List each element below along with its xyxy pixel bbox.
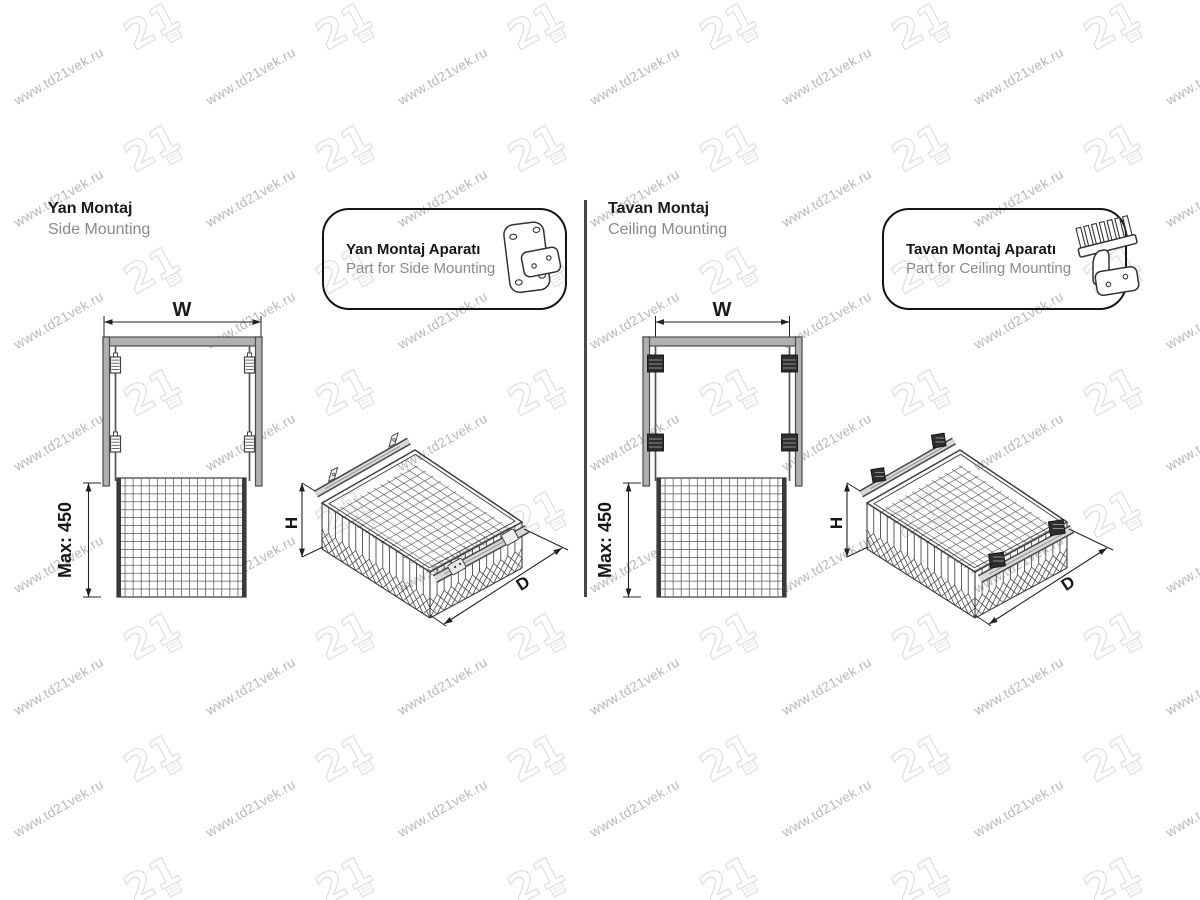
callout-text: Yan Montaj Aparatı Part for Side Mountin… <box>324 240 495 279</box>
callout-title-en: Part for Side Mounting <box>346 259 495 279</box>
watermark-text: www.td21vek.ru <box>779 167 874 230</box>
callout-title-en: Part for Ceiling Mounting <box>906 259 1071 279</box>
side-mounting-title: Yan Montaj Side Mounting <box>48 199 150 240</box>
svg-text:21: 21 <box>309 0 380 60</box>
svg-text:21: 21 <box>117 847 188 900</box>
side-mount-part-icon <box>495 215 563 303</box>
max-height-dimension <box>83 483 101 597</box>
watermark-text: www.td21vek.ru <box>1163 45 1200 108</box>
watermark-text: www.td21vek.ru <box>587 655 682 718</box>
diagram-canvas: 2121212121212121212121212121212121212121… <box>0 0 1200 900</box>
brand-21-logo-watermark: 21 <box>890 363 954 427</box>
svg-text:21: 21 <box>501 725 572 792</box>
svg-text:21: 21 <box>117 115 188 182</box>
watermark-text: www.td21vek.ru <box>779 655 874 718</box>
panel-title-en: Side Mounting <box>48 220 150 240</box>
brand-21-logo-watermark: 21 <box>698 607 762 671</box>
svg-text:21: 21 <box>885 359 956 426</box>
svg-text:21: 21 <box>309 847 380 900</box>
svg-text:21: 21 <box>885 0 956 60</box>
panel-title-en: Ceiling Mounting <box>608 220 727 240</box>
svg-text:21: 21 <box>117 0 188 60</box>
svg-text:21: 21 <box>309 725 380 792</box>
brand-21-logo-watermark: 21 <box>506 363 570 427</box>
svg-text:21: 21 <box>309 359 380 426</box>
brand-21-logo-watermark: 21 <box>122 0 186 61</box>
front-view-ceiling-mounting: W Max: 450 <box>595 295 840 610</box>
height-dimension-label: H <box>827 517 846 529</box>
brand-21-logo-watermark: 21 <box>890 119 954 183</box>
hanging-rails <box>656 346 790 481</box>
brand-21-logo-watermark: 21 <box>1082 729 1146 793</box>
panel-title-tr: Tavan Montaj <box>608 199 727 219</box>
brand-21-logo-watermark: 21 <box>122 119 186 183</box>
watermark-text: www.td21vek.ru <box>395 45 490 108</box>
watermark-text: www.td21vek.ru <box>779 777 874 840</box>
watermark-text: www.td21vek.ru <box>1163 533 1200 596</box>
watermark-text: www.td21vek.ru <box>971 655 1066 718</box>
width-dimension-label: W <box>713 299 732 321</box>
brand-21-logo-watermark: 21 <box>698 0 762 61</box>
watermark-text: www.td21vek.ru <box>395 777 490 840</box>
svg-text:21: 21 <box>117 603 188 670</box>
brand-21-logo-watermark: 21 <box>506 119 570 183</box>
svg-text:21: 21 <box>693 603 764 670</box>
panel-title-tr: Yan Montaj <box>48 199 150 219</box>
callout-title-tr: Tavan Montaj Aparatı <box>906 240 1071 260</box>
svg-text:21: 21 <box>885 115 956 182</box>
cabinet-frame <box>643 337 802 486</box>
height-dimension-label: H <box>282 517 301 529</box>
ceiling-mount-clips <box>648 355 798 451</box>
watermark-text: www.td21vek.ru <box>587 45 682 108</box>
watermark-text: www.td21vek.ru <box>11 777 106 840</box>
watermark-text: www.td21vek.ru <box>1163 777 1200 840</box>
brand-21-logo-watermark: 21 <box>698 119 762 183</box>
depth-dimension-label: D <box>1058 572 1079 595</box>
svg-text:21: 21 <box>1077 0 1148 60</box>
max-height-dimension <box>623 483 641 597</box>
slide-rails <box>861 441 1072 579</box>
max-height-dimension-label: Max: 450 <box>55 502 75 578</box>
brand-21-logo-watermark: 21 <box>314 851 378 900</box>
front-view-drawing <box>623 316 802 597</box>
svg-text:21: 21 <box>885 725 956 792</box>
svg-text:21: 21 <box>117 725 188 792</box>
svg-text:21: 21 <box>501 847 572 900</box>
watermark-text: www.td21vek.ru <box>1163 167 1200 230</box>
watermark-text: www.td21vek.ru <box>11 45 106 108</box>
watermark-text: www.td21vek.ru <box>203 777 298 840</box>
depth-dimension-label: D <box>513 572 534 595</box>
svg-text:21: 21 <box>693 847 764 900</box>
width-dimension-label: W <box>173 299 192 321</box>
wire-basket-front <box>657 478 786 597</box>
watermark-text: www.td21vek.ru <box>971 45 1066 108</box>
svg-text:21: 21 <box>1077 725 1148 792</box>
svg-text:21: 21 <box>885 847 956 900</box>
brand-21-logo-watermark: 21 <box>1082 0 1146 61</box>
brand-21-logo-watermark: 21 <box>698 851 762 900</box>
ceiling-mount-part-callout: Tavan Montaj Aparatı Part for Ceiling Mo… <box>882 208 1127 310</box>
svg-text:21: 21 <box>1077 115 1148 182</box>
brand-21-logo-watermark: 21 <box>122 851 186 900</box>
hanging-rails <box>116 346 250 481</box>
brand-21-logo-watermark: 21 <box>122 729 186 793</box>
watermark-text: www.td21vek.ru <box>1163 289 1200 352</box>
watermark-text: www.td21vek.ru <box>395 655 490 718</box>
brand-21-logo-watermark: 21 <box>506 851 570 900</box>
cabinet-frame <box>103 337 262 486</box>
svg-text:21: 21 <box>693 115 764 182</box>
watermark-text: www.td21vek.ru <box>203 655 298 718</box>
side-mount-part-callout: Yan Montaj Aparatı Part for Side Mountin… <box>322 208 567 310</box>
svg-text:21: 21 <box>501 0 572 60</box>
front-view-side-mounting: W Max: 450 <box>55 295 300 610</box>
brand-21-logo-watermark: 21 <box>1082 363 1146 427</box>
brand-21-logo-watermark: 21 <box>506 729 570 793</box>
svg-text:21: 21 <box>501 115 572 182</box>
watermark-text: www.td21vek.ru <box>1163 411 1200 474</box>
watermark-text: www.td21vek.ru <box>779 45 874 108</box>
watermark-text: www.td21vek.ru <box>11 655 106 718</box>
svg-text:21: 21 <box>693 237 764 304</box>
brand-21-logo-watermark: 21 <box>890 0 954 61</box>
watermark-text: www.td21vek.ru <box>587 777 682 840</box>
isometric-basket-side-mounting: H D <box>288 423 588 628</box>
ceiling-mounting-title: Tavan Montaj Ceiling Mounting <box>608 199 727 240</box>
callout-text: Tavan Montaj Aparatı Part for Ceiling Mo… <box>884 240 1071 279</box>
isometric-drawing <box>299 433 568 626</box>
side-mount-clips <box>111 353 255 452</box>
brand-21-logo-watermark: 21 <box>1082 119 1146 183</box>
svg-text:21: 21 <box>1077 359 1148 426</box>
watermark-text: www.td21vek.ru <box>971 777 1066 840</box>
brand-21-logo-watermark: 21 <box>314 0 378 61</box>
brand-21-logo-watermark: 21 <box>890 729 954 793</box>
brand-21-logo-watermark: 21 <box>1082 851 1146 900</box>
brand-21-logo-watermark: 21 <box>122 607 186 671</box>
brand-21-logo-watermark: 21 <box>314 119 378 183</box>
svg-text:21: 21 <box>693 0 764 60</box>
max-height-dimension-label: Max: 450 <box>595 502 615 578</box>
brand-21-logo-watermark: 21 <box>314 729 378 793</box>
svg-text:21: 21 <box>1077 847 1148 900</box>
brand-21-logo-watermark: 21 <box>506 0 570 61</box>
wire-basket-front <box>117 478 246 597</box>
watermark-text: www.td21vek.ru <box>203 45 298 108</box>
front-view-drawing <box>83 316 262 597</box>
watermark-text: www.td21vek.ru <box>203 167 298 230</box>
watermark-text: www.td21vek.ru <box>1163 655 1200 718</box>
svg-text:21: 21 <box>117 237 188 304</box>
brand-21-logo-watermark: 21 <box>698 729 762 793</box>
brand-21-logo-watermark: 21 <box>890 851 954 900</box>
isometric-basket-ceiling-mounting: H D <box>833 423 1133 628</box>
callout-title-tr: Yan Montaj Aparatı <box>346 240 495 260</box>
svg-text:21: 21 <box>501 359 572 426</box>
svg-text:21: 21 <box>309 115 380 182</box>
ceiling-mount-part-icon <box>1071 215 1147 303</box>
brand-21-logo-watermark: 21 <box>314 363 378 427</box>
isometric-drawing <box>844 433 1113 626</box>
slide-rails <box>316 441 527 579</box>
svg-text:21: 21 <box>693 725 764 792</box>
